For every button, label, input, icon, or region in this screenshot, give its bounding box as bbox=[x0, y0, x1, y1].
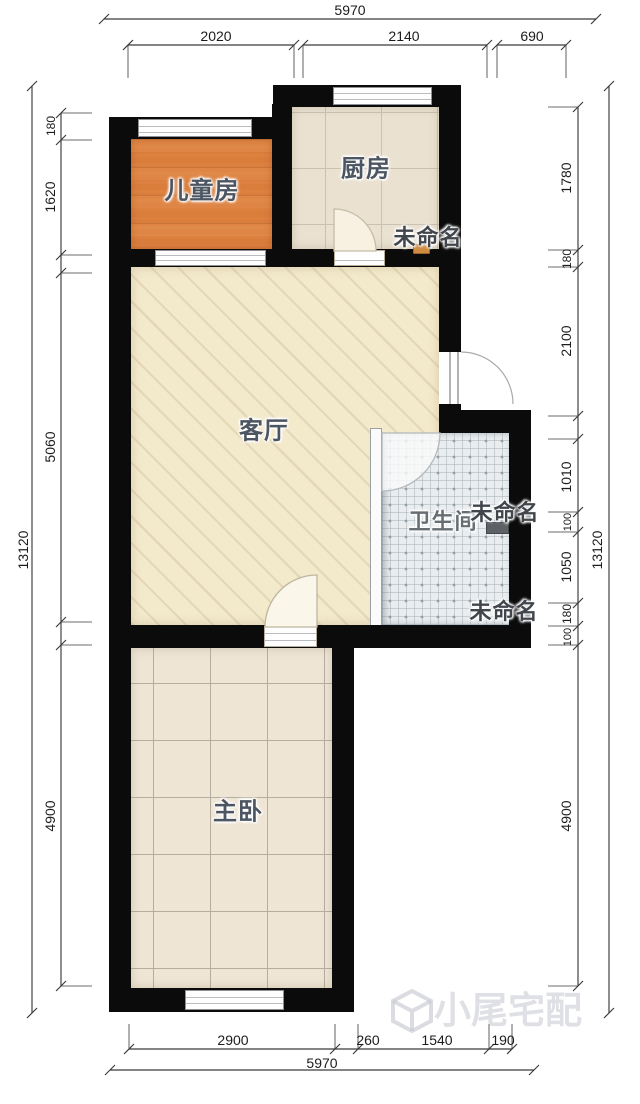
svg-text:2140: 2140 bbox=[388, 28, 419, 44]
svg-text:2100: 2100 bbox=[558, 325, 574, 356]
svg-text:1780: 1780 bbox=[558, 162, 574, 193]
svg-text:180: 180 bbox=[560, 249, 574, 269]
svg-text:1620: 1620 bbox=[42, 181, 58, 212]
svg-text:13120: 13120 bbox=[15, 530, 31, 569]
svg-text:小尾宅配: 小尾宅配 bbox=[434, 989, 582, 1031]
svg-text:100: 100 bbox=[562, 628, 574, 646]
svg-text:4900: 4900 bbox=[42, 800, 58, 831]
svg-text:1540: 1540 bbox=[421, 1032, 452, 1048]
svg-text:5970: 5970 bbox=[334, 2, 365, 18]
svg-text:4900: 4900 bbox=[558, 800, 574, 831]
svg-text:1050: 1050 bbox=[558, 551, 574, 582]
svg-text:690: 690 bbox=[520, 28, 544, 44]
svg-text:13120: 13120 bbox=[589, 530, 605, 569]
svg-text:260: 260 bbox=[356, 1032, 380, 1048]
svg-text:5060: 5060 bbox=[42, 431, 58, 462]
svg-text:2020: 2020 bbox=[200, 28, 231, 44]
svg-text:1010: 1010 bbox=[558, 461, 574, 492]
svg-text:2900: 2900 bbox=[217, 1032, 248, 1048]
svg-text:180: 180 bbox=[44, 116, 58, 136]
svg-text:5970: 5970 bbox=[306, 1055, 337, 1071]
svg-text:100: 100 bbox=[562, 513, 574, 531]
svg-text:190: 190 bbox=[491, 1032, 515, 1048]
svg-text:180: 180 bbox=[560, 604, 574, 624]
